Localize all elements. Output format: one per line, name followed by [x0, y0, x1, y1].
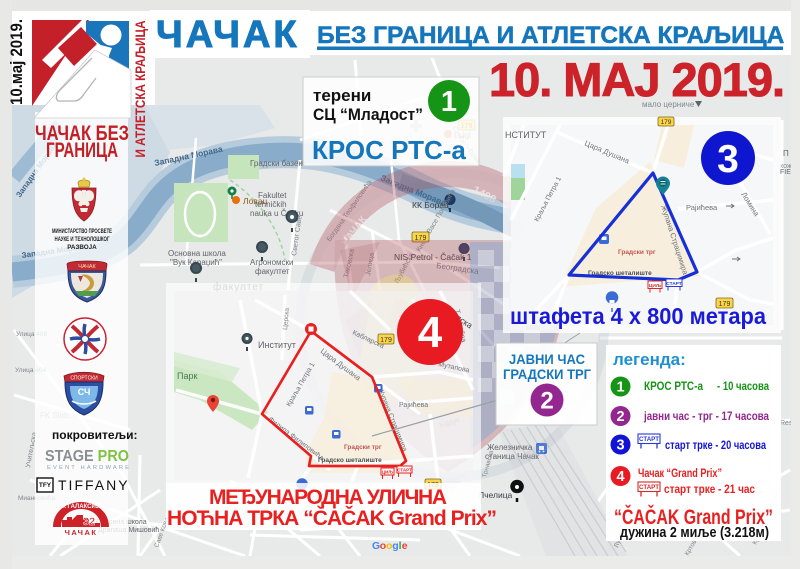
- svg-text:TIFFANY: TIFFANY: [58, 477, 130, 493]
- svg-text:e: e: [402, 540, 408, 552]
- svg-text:НСТИТУТ: НСТИТУТ: [505, 130, 547, 140]
- svg-text:Рајићева: Рајићева: [399, 401, 428, 409]
- svg-text:РАЗВОЈА: РАЗВОЈА: [67, 244, 97, 251]
- svg-text:1: 1: [441, 86, 457, 118]
- svg-text:КРОС РТС-а: КРОС РТС-а: [644, 379, 703, 393]
- svg-text:ЧАЧАК: ЧАЧАК: [156, 14, 300, 56]
- svg-text:старт трке - 20 часова: старт трке - 20 часова: [665, 438, 766, 452]
- svg-text:TFY: TFY: [39, 482, 52, 489]
- svg-text:Парк: Парк: [177, 371, 197, 381]
- svg-text:покровитељи:: покровитељи:: [52, 428, 138, 442]
- svg-text:И АТЛЕТСКА КРАЉИЦА: И АТЛЕТСКА КРАЉИЦА: [133, 20, 148, 157]
- svg-text:МИНИСТАРСТВО ПРОСВЕТЕ: МИНИСТАРСТВО ПРОСВЕТЕ: [52, 228, 112, 235]
- svg-text:10.мај 2019.: 10.мај 2019.: [7, 19, 26, 105]
- svg-text:ЧАЧАК: ЧАЧАК: [78, 264, 96, 270]
- svg-text:10. МАЈ 2019.: 10. МАЈ 2019.: [489, 53, 785, 106]
- svg-text:- 10 часова: - 10 часова: [717, 379, 769, 393]
- svg-text:STAGE PRO: STAGE PRO: [45, 448, 129, 465]
- svg-text:МЕЂУНАРОДНА УЛИЧНА: МЕЂУНАРОДНА УЛИЧНА: [209, 486, 447, 509]
- svg-text:Градско шеталиште: Градско шеталиште: [318, 457, 382, 464]
- svg-text:СЧ: СЧ: [78, 387, 91, 397]
- svg-text:Институт: Институт: [258, 340, 296, 350]
- svg-text:4: 4: [418, 308, 443, 357]
- svg-text:Основна школа: Основна школа: [168, 249, 226, 258]
- svg-text:Чачак “Grand Prix”: Чачак “Grand Prix”: [638, 466, 722, 480]
- svg-text:КРОС РТС-а: КРОС РТС-а: [312, 135, 466, 165]
- svg-text:БЕЗ ГРАНИЦА И АТЛЕТСКА КРАЉИЦА: БЕЗ ГРАНИЦА И АТЛЕТСКА КРАЉИЦА: [317, 22, 785, 49]
- svg-text:179: 179: [661, 119, 672, 126]
- svg-text:Градски трг: Градски трг: [618, 249, 656, 256]
- svg-text:НОЋНА ТРКА “ČAČAK Grand Prix”: НОЋНА ТРКА “ČAČAK Grand Prix”: [167, 506, 497, 530]
- svg-text:дужина 2 миље (3.218м): дужина 2 миље (3.218м): [620, 524, 769, 541]
- svg-text:факултет: факултет: [255, 267, 290, 276]
- svg-text:терени: терени: [313, 86, 371, 105]
- svg-text:tehničkih: tehničkih: [255, 200, 287, 209]
- svg-text:старт трке - 21 час: старт трке - 21 час: [664, 482, 755, 496]
- svg-text:штафета 4 х 800 метара: штафета 4 х 800 метара: [510, 303, 767, 329]
- svg-text:179: 179: [380, 337, 392, 344]
- svg-text:Агрономски: Агрономски: [250, 258, 294, 267]
- svg-text:СТАРТ: СТАРТ: [666, 281, 682, 287]
- svg-text:4: 4: [616, 469, 624, 485]
- svg-text:јавни час - трг - 17 часова: јавни час - трг - 17 часова: [643, 409, 769, 423]
- svg-text:ЈАВНИ ЧАС: ЈАВНИ ЧАС: [509, 352, 585, 367]
- svg-text:ЧАЧАК: ЧАЧАК: [65, 528, 98, 537]
- svg-text:32: 32: [83, 516, 95, 528]
- svg-text:ГРАНИЦА: ГРАНИЦА: [46, 139, 118, 162]
- svg-text:ГРАДСКИ ТРГ: ГРАДСКИ ТРГ: [503, 367, 591, 382]
- svg-text:Железничка: Железничка: [487, 443, 533, 452]
- svg-text:Рајићева: Рајићева: [686, 203, 718, 212]
- svg-text:3: 3: [616, 438, 624, 454]
- svg-text:3: 3: [717, 138, 739, 181]
- svg-text:Градски трг: Градски трг: [344, 444, 382, 451]
- svg-text:СТАРТ: СТАРТ: [639, 436, 659, 443]
- svg-text:легенда:: легенда:: [613, 350, 686, 369]
- svg-text:2: 2: [616, 409, 624, 425]
- svg-text:1: 1: [616, 380, 624, 396]
- svg-text:ЦИЉ: ЦИЉ: [649, 283, 662, 289]
- svg-text:П: П: [783, 149, 789, 158]
- svg-text:Градски базен: Градски базен: [250, 159, 303, 168]
- svg-text:СЦ “Младост”: СЦ “Младост”: [313, 105, 423, 124]
- svg-text:ТК ГАЛАКСИЈА: ТК ГАЛАКСИЈА: [59, 504, 105, 510]
- svg-text:Fakultet: Fakultet: [258, 191, 287, 200]
- svg-text:2: 2: [540, 388, 553, 415]
- svg-text:Пчелица: Пчелица: [478, 490, 513, 500]
- svg-text:СТАРТ: СТАРТ: [639, 484, 659, 491]
- svg-text:СТАРТ: СТАРТ: [397, 468, 412, 473]
- svg-text:ЦИЉ: ЦИЉ: [382, 470, 394, 475]
- svg-text:СПОРТСКИ: СПОРТСКИ: [70, 376, 98, 382]
- svg-text:НАУКЕ И ТЕХНОЛОШКОГ: НАУКЕ И ТЕХНОЛОШКОГ: [55, 236, 110, 243]
